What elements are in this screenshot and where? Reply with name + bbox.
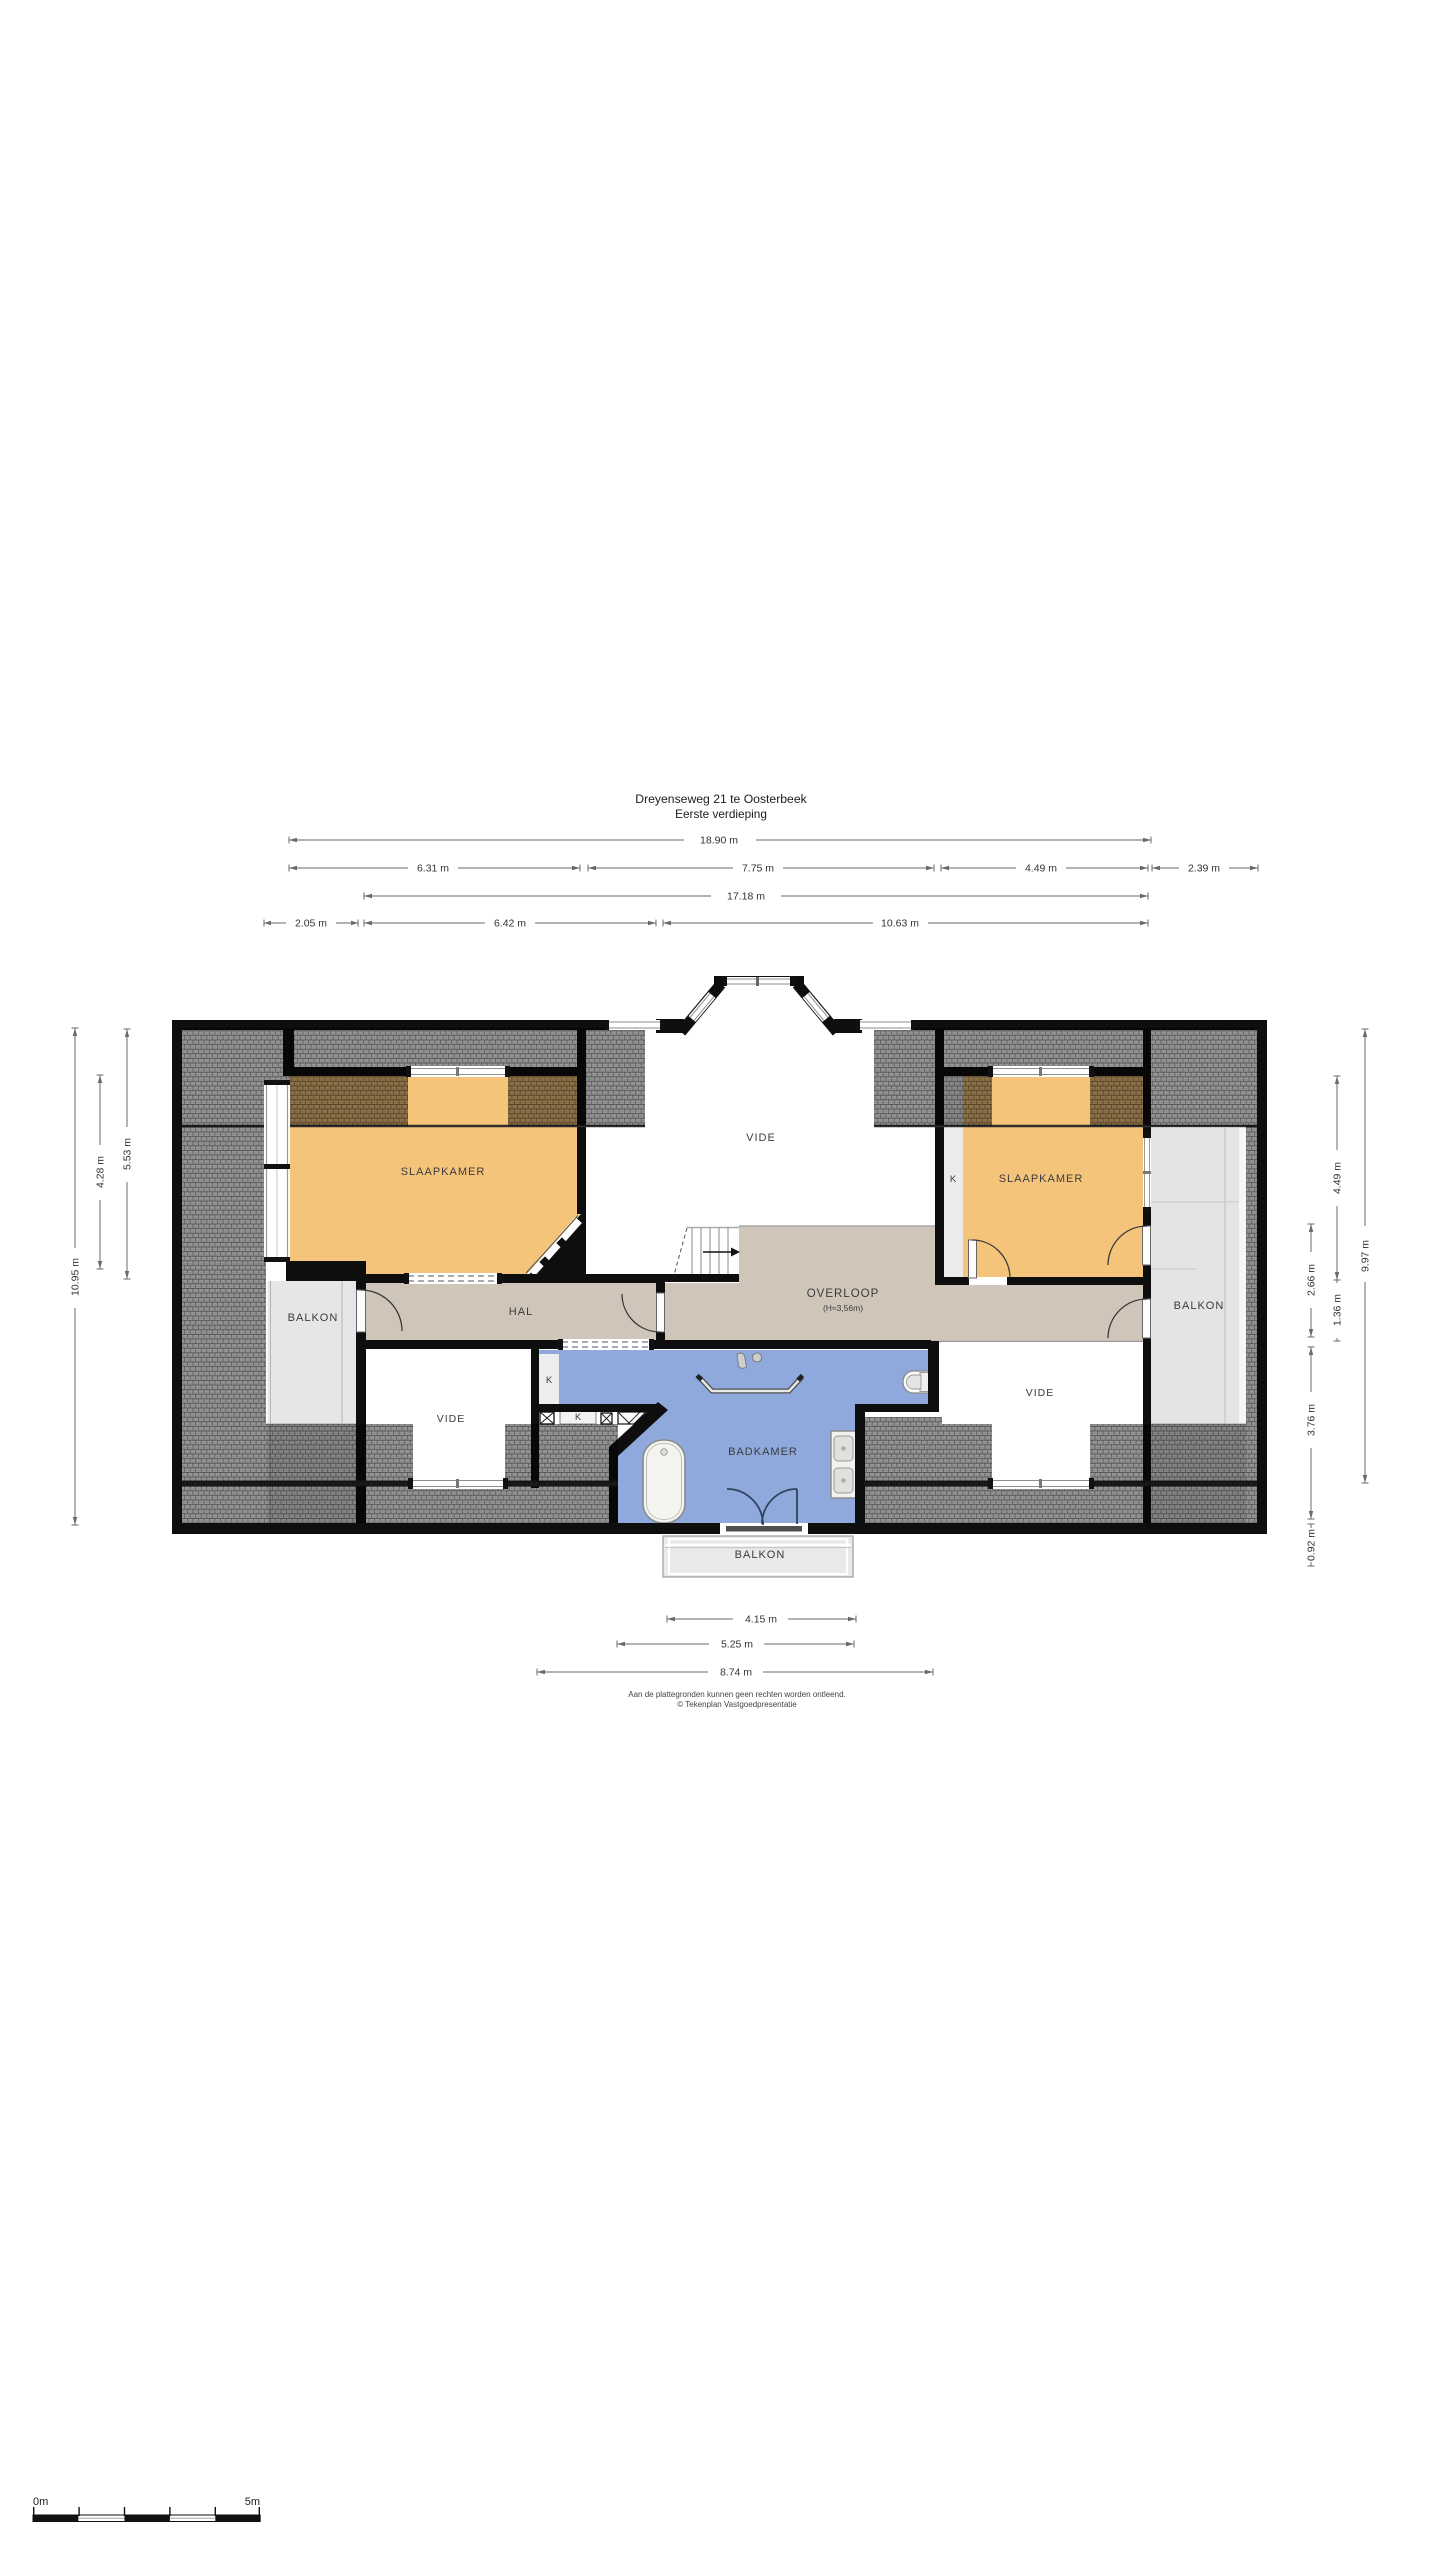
svg-text:HAL: HAL	[509, 1306, 533, 1318]
svg-text:0.92 m: 0.92 m	[1306, 1529, 1318, 1561]
svg-text:Dreyenseweg 21 te Oosterbeek: Dreyenseweg 21 te Oosterbeek	[635, 792, 807, 806]
svg-text:5m: 5m	[245, 2496, 260, 2508]
svg-text:BALKON: BALKON	[735, 1549, 786, 1561]
svg-text:BADKAMER: BADKAMER	[728, 1446, 798, 1458]
svg-text:© Tekenplan Vastgoedpresentati: © Tekenplan Vastgoedpresentatie	[677, 1700, 797, 1709]
svg-text:4.49 m: 4.49 m	[1332, 1162, 1344, 1194]
svg-text:9.97 m: 9.97 m	[1360, 1240, 1372, 1272]
svg-text:8.74 m: 8.74 m	[720, 1667, 752, 1679]
svg-text:10.95 m: 10.95 m	[70, 1258, 82, 1296]
svg-text:2.39 m: 2.39 m	[1188, 863, 1220, 875]
svg-text:17.18 m: 17.18 m	[727, 891, 765, 903]
svg-text:18.90 m: 18.90 m	[700, 835, 738, 847]
svg-text:BALKON: BALKON	[1174, 1300, 1225, 1312]
svg-text:0m: 0m	[33, 2496, 48, 2508]
svg-text:1.36 m: 1.36 m	[1332, 1294, 1344, 1326]
svg-text:5.53 m: 5.53 m	[122, 1138, 134, 1170]
svg-text:7.75 m: 7.75 m	[742, 863, 774, 875]
svg-text:K: K	[950, 1174, 957, 1185]
svg-text:5.25 m: 5.25 m	[721, 1639, 753, 1651]
svg-text:Aan de plattegronden kunnen ge: Aan de plattegronden kunnen geen rechten…	[628, 1690, 846, 1699]
svg-text:VIDE: VIDE	[1026, 1387, 1055, 1399]
svg-text:K: K	[575, 1412, 581, 1422]
svg-text:SLAAPKAMER: SLAAPKAMER	[999, 1173, 1084, 1185]
svg-text:4.15 m: 4.15 m	[745, 1614, 777, 1626]
svg-text:2.05 m: 2.05 m	[295, 918, 327, 930]
svg-text:Eerste verdieping: Eerste verdieping	[675, 807, 767, 821]
svg-text:4.49 m: 4.49 m	[1025, 863, 1057, 875]
svg-text:VIDE: VIDE	[746, 1132, 776, 1144]
svg-text:OVERLOOP: OVERLOOP	[807, 1288, 880, 1300]
svg-text:3.76 m: 3.76 m	[1306, 1404, 1318, 1436]
svg-text:SLAAPKAMER: SLAAPKAMER	[401, 1166, 486, 1178]
svg-text:VIDE: VIDE	[437, 1413, 466, 1425]
svg-text:6.31 m: 6.31 m	[417, 863, 449, 875]
svg-text:(H≈3,56m): (H≈3,56m)	[823, 1303, 863, 1313]
svg-text:K: K	[546, 1375, 553, 1386]
svg-text:10.63 m: 10.63 m	[881, 918, 919, 930]
svg-text:6.42 m: 6.42 m	[494, 918, 526, 930]
svg-text:BALKON: BALKON	[288, 1312, 339, 1324]
svg-text:2.66 m: 2.66 m	[1306, 1264, 1318, 1296]
svg-text:4.28 m: 4.28 m	[95, 1156, 107, 1188]
